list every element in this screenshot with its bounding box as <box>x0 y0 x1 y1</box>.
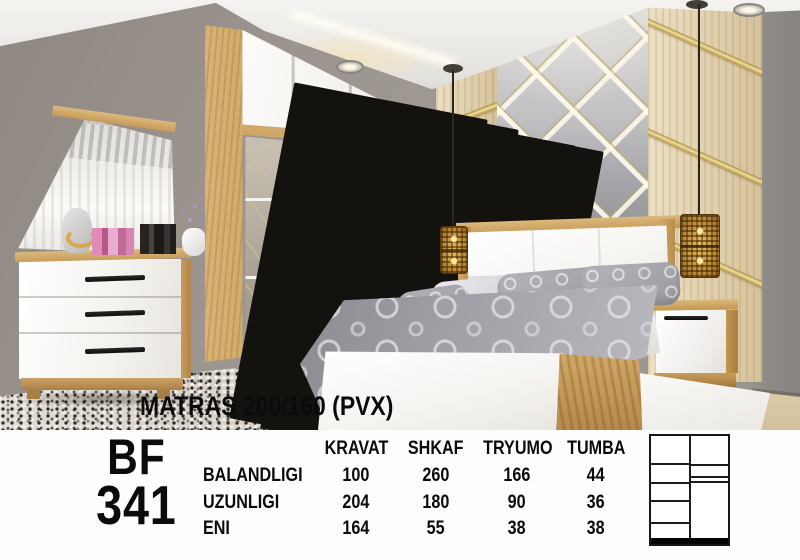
value-cell: 90 <box>477 492 557 514</box>
dresser <box>15 250 191 402</box>
model-code: BF 341 <box>52 432 220 533</box>
schematic-base <box>651 538 728 544</box>
value-cell: 44 <box>557 465 635 487</box>
value-cell: 180 <box>395 492 477 514</box>
value-cell: 38 <box>477 518 557 540</box>
col-header-shkaf: SHKAF <box>395 438 477 460</box>
value-cell: 164 <box>317 518 395 540</box>
wardrobe-front-diagram <box>649 434 730 546</box>
spec-band: BF 341 KRAVAT SHKAF TRYUMO TUMBA BALANDL… <box>0 430 800 560</box>
lamp-ceiling-mount <box>686 0 708 9</box>
gold-strip <box>648 14 762 80</box>
mattress-size-text: MATRAS 200/160 (PVX) <box>140 391 393 422</box>
dresser-side <box>181 260 191 378</box>
col-header-tryumo: TRYUMO <box>477 438 557 460</box>
furniture-ad-flyer: MATRAS 200/160 (PVX) BF 341 KRAVAT SHKAF… <box>0 0 800 560</box>
mattress-size-label: MATRAS 200/160 (PVX) <box>140 391 438 422</box>
value-cell: 204 <box>317 492 395 514</box>
pendant-lamp-right <box>680 214 720 278</box>
spec-table: KRAVAT SHKAF TRYUMO TUMBA BALANDLIGI 100… <box>203 436 635 542</box>
value-cell: 55 <box>395 518 477 540</box>
value-cell: 38 <box>557 518 635 540</box>
bed-wood-base <box>556 352 648 437</box>
value-cell: 166 <box>477 465 557 487</box>
value-cell: 36 <box>557 492 635 514</box>
col-header-tumba: TUMBA <box>557 438 635 460</box>
row-label-uzunligi: UZUNLIGI <box>203 492 317 514</box>
pendant-lamp-left <box>440 226 468 274</box>
col-header-kravat: KRAVAT <box>317 438 395 460</box>
dresser-base <box>21 378 183 390</box>
recessed-light <box>733 3 765 17</box>
row-label-balandligi: BALANDLIGI <box>203 465 317 487</box>
lamp-cord <box>698 4 700 216</box>
flower-vase <box>182 228 206 256</box>
lamp-cord <box>452 70 454 228</box>
perfume-bottles-pink <box>92 228 134 255</box>
gold-strip <box>648 124 762 190</box>
nightstand-handle <box>664 316 708 320</box>
value-cell: 100 <box>317 465 395 487</box>
value-cell: 260 <box>395 465 477 487</box>
row-label-eni: ENI <box>203 518 317 540</box>
perfume-bottles-black <box>140 224 176 254</box>
model-line2: 341 <box>96 478 177 533</box>
